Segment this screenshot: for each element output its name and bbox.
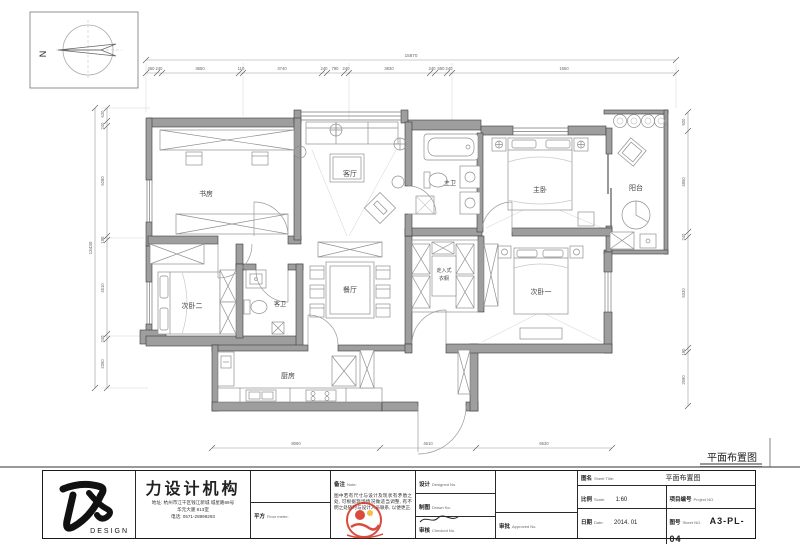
svg-text:2590: 2590 [681, 375, 686, 385]
svg-text:450: 450 [148, 66, 156, 71]
svg-text:920: 920 [681, 118, 686, 126]
room-label-guest-bath: 客卫 [274, 300, 286, 308]
svg-text:240: 240 [100, 122, 105, 130]
svg-text:13430: 13430 [88, 241, 93, 254]
approved-zh: 审批 [499, 524, 510, 530]
svg-text:3830: 3830 [384, 66, 394, 71]
north-label: N [38, 51, 48, 58]
logo-cell: DESIGN [43, 471, 136, 538]
svg-text:620: 620 [100, 110, 105, 118]
project-no-zh: 项目编号 [670, 497, 692, 503]
checked-zh: 审核 [419, 528, 430, 534]
company-address-2: 华元大厦 813室 [136, 506, 250, 513]
bath-sink [460, 166, 480, 188]
svg-text:3650: 3650 [195, 66, 205, 71]
svg-text:5280: 5280 [100, 176, 105, 186]
floor-metre-zh: 平方 [254, 514, 265, 520]
sideboard [318, 242, 382, 257]
washing-machine [610, 232, 634, 249]
closet-shelf [456, 244, 474, 274]
study-chair [186, 152, 202, 165]
side-table [392, 176, 404, 188]
sign-rows-cell: 设计Designed No. 制图Drawn No. 审核Checked No. [416, 471, 496, 538]
sheet-title-zh: 图名 [581, 474, 592, 482]
closet-shelf [412, 244, 430, 274]
sheet-no-en: Sheet NO. [683, 520, 702, 525]
study-desk [160, 130, 294, 150]
dining-chair [310, 285, 324, 298]
scale-project-row: 比例Scale: 1:60 项目编号Project NO. [578, 486, 755, 509]
note-cell: 备注Note: 图中若有尺寸与设计及现状有矛盾之处, 可根据现场情况做适当调整,… [331, 471, 416, 538]
tv-stand [364, 192, 395, 223]
svg-text:4610: 4610 [423, 441, 433, 446]
room-label-closet-2: 衣橱 [439, 275, 449, 282]
room-label-master-bath: 主卫 [444, 179, 456, 187]
date-zh: 日期 [581, 520, 592, 526]
company-cell: 力设计机构 地址: 杭州市江干区钱江新城 城星路89号 华元大厦 813室 电话… [136, 471, 251, 538]
balcony-chair [618, 138, 646, 166]
svg-text:240: 240 [681, 233, 686, 241]
svg-text:240: 240 [429, 66, 437, 71]
kitchen-counter [218, 388, 382, 402]
kitchen-door [308, 315, 338, 345]
study-chair [252, 152, 268, 165]
kitchen-cabinet [218, 352, 234, 386]
svg-text:190: 190 [681, 348, 686, 356]
svg-text:8060: 8060 [291, 441, 301, 446]
master-bed [508, 138, 572, 210]
bath-sink [460, 192, 480, 214]
scale-value: 1:60 [616, 497, 628, 503]
svg-text:2350: 2350 [100, 359, 105, 369]
checked-row: 审核Checked No. [416, 517, 495, 539]
drawn-zh: 制图 [419, 505, 430, 511]
drawing-sheet: { "compass": { "north": "N" }, "caption"… [0, 0, 800, 544]
dining-chair [376, 266, 390, 279]
ceiling-light [394, 138, 406, 150]
approved-row: 审批Approved No. [496, 513, 577, 538]
bedroom1-wardrobe [484, 244, 498, 306]
designed-row: 设计Designed No. [416, 471, 495, 494]
svg-text:3740: 3740 [277, 66, 287, 71]
designed-en: Designed No. [432, 482, 456, 487]
room-label-closet-1: 走入式 [436, 267, 451, 274]
checked-en: Checked No. [432, 528, 455, 533]
nightstand [498, 246, 511, 258]
title-block: DESIGN 力设计机构 地址: 杭州市江干区钱江新城 城星路89号 华元大厦 … [42, 470, 756, 539]
svg-text:790: 790 [332, 66, 340, 71]
note-zh: 备注 [334, 482, 345, 488]
bedroom1-bed [514, 248, 568, 314]
svg-text:110: 110 [238, 66, 245, 71]
sheet-title-value: 平面布置图 [614, 473, 752, 483]
scale-zh: 比例 [581, 497, 592, 503]
svg-text:5330: 5330 [681, 288, 686, 298]
svg-text:550: 550 [438, 66, 446, 71]
svg-text:1550: 1550 [559, 66, 569, 71]
svg-text:190: 190 [100, 236, 105, 244]
date-sheetno-row: 日期Date: 2014. 01 图号Sheet NO. A3-PL-04 [578, 509, 755, 544]
kitchen-tall-cabinet [360, 350, 374, 388]
checked-signature [418, 513, 460, 525]
svg-text:4850: 4850 [681, 177, 686, 187]
approved-cell: 审批Approved No. [496, 471, 578, 538]
svg-text:6530: 6530 [539, 441, 549, 446]
sofa [306, 122, 398, 144]
nightstand [570, 246, 583, 258]
bed-bench [520, 328, 562, 339]
red-stamp-icon [339, 497, 389, 543]
closet-shelf [412, 276, 430, 308]
balcony-plants [614, 115, 668, 128]
svg-text:240: 240 [156, 66, 164, 71]
balcony-sink [640, 234, 656, 248]
drawn-en: Drawn No. [432, 505, 451, 510]
sheet-title-en: Sheet Title: [594, 476, 614, 481]
design-word: DESIGN [90, 528, 129, 535]
date-en: Date: [594, 520, 604, 525]
floor-metre-en: Floor metre: [267, 514, 289, 519]
floor-metre-cell: 平方Floor metre: [251, 471, 331, 538]
approved-en: Approved No. [512, 524, 536, 529]
svg-text:15870: 15870 [405, 53, 418, 58]
plan-caption: 平面布置图 [707, 452, 757, 464]
bedroom2-wardrobe [220, 302, 236, 334]
sheet-frame: 平面布置图 [0, 438, 800, 467]
room-label-balcony: 阳台 [629, 183, 643, 192]
study-wardrobe [176, 214, 288, 234]
room-label-dining: 餐厅 [343, 285, 357, 294]
svg-text:4510: 4510 [100, 283, 105, 293]
room-label-kitchen: 厨房 [281, 371, 295, 380]
sheet-no-zh: 图号 [670, 520, 681, 526]
entry-door [418, 406, 466, 454]
closet-shelf [432, 242, 454, 254]
note-en: Note: [347, 482, 357, 487]
compass-icon: N [30, 12, 138, 88]
room-label-living: 客厅 [343, 169, 357, 178]
company-address-1: 地址: 杭州市江干区钱江新城 城星路89号 [136, 499, 250, 506]
dining-chair [376, 285, 390, 298]
li-logo-icon [49, 475, 119, 533]
nightstand [492, 138, 506, 151]
room-label-master-bedroom: 主卧 [533, 185, 547, 194]
svg-text:240: 240 [321, 66, 329, 71]
bedroom2-cabinet [150, 244, 204, 264]
company-name: 力设计机构 [136, 475, 250, 499]
sheet-title-row: 图名Sheet Title: 平面布置图 [578, 471, 755, 486]
date-value: 2014. 01 [614, 520, 637, 526]
closet-shelf [456, 276, 474, 308]
nightstand [574, 138, 588, 151]
project-no-en: Project NO. [694, 497, 715, 502]
ceiling-light [330, 124, 342, 136]
dining-chair [310, 266, 324, 279]
shoe-cabinet [458, 350, 470, 394]
dining-chair [376, 304, 390, 317]
bedroom1-door [412, 310, 446, 344]
svg-text:240: 240 [446, 66, 454, 71]
room-label-study: 书房 [199, 189, 213, 198]
guest-toilet [244, 300, 267, 314]
svg-text:240: 240 [100, 335, 105, 343]
floor-drain [272, 322, 284, 334]
bedroom2-wardrobe [220, 270, 236, 302]
designed-zh: 设计 [419, 482, 430, 488]
scale-en: Scale: [594, 497, 605, 502]
floor-plan-canvas: N 15870 450 240 3650 110 3740 240 790 24… [0, 0, 800, 544]
svg-text:240: 240 [343, 66, 351, 71]
room-label-bedroom1: 次卧一 [531, 287, 552, 296]
balcony-table [622, 201, 650, 229]
sheet-meta-cell: 图名Sheet Title: 平面布置图 比例Scale: 1:60 项目编号P… [578, 471, 755, 538]
company-phone: 电话: 0571-28999293 [136, 513, 250, 520]
bathtub [424, 134, 478, 160]
fridge [332, 356, 356, 386]
room-label-bedroom2: 次卧二 [182, 301, 203, 310]
